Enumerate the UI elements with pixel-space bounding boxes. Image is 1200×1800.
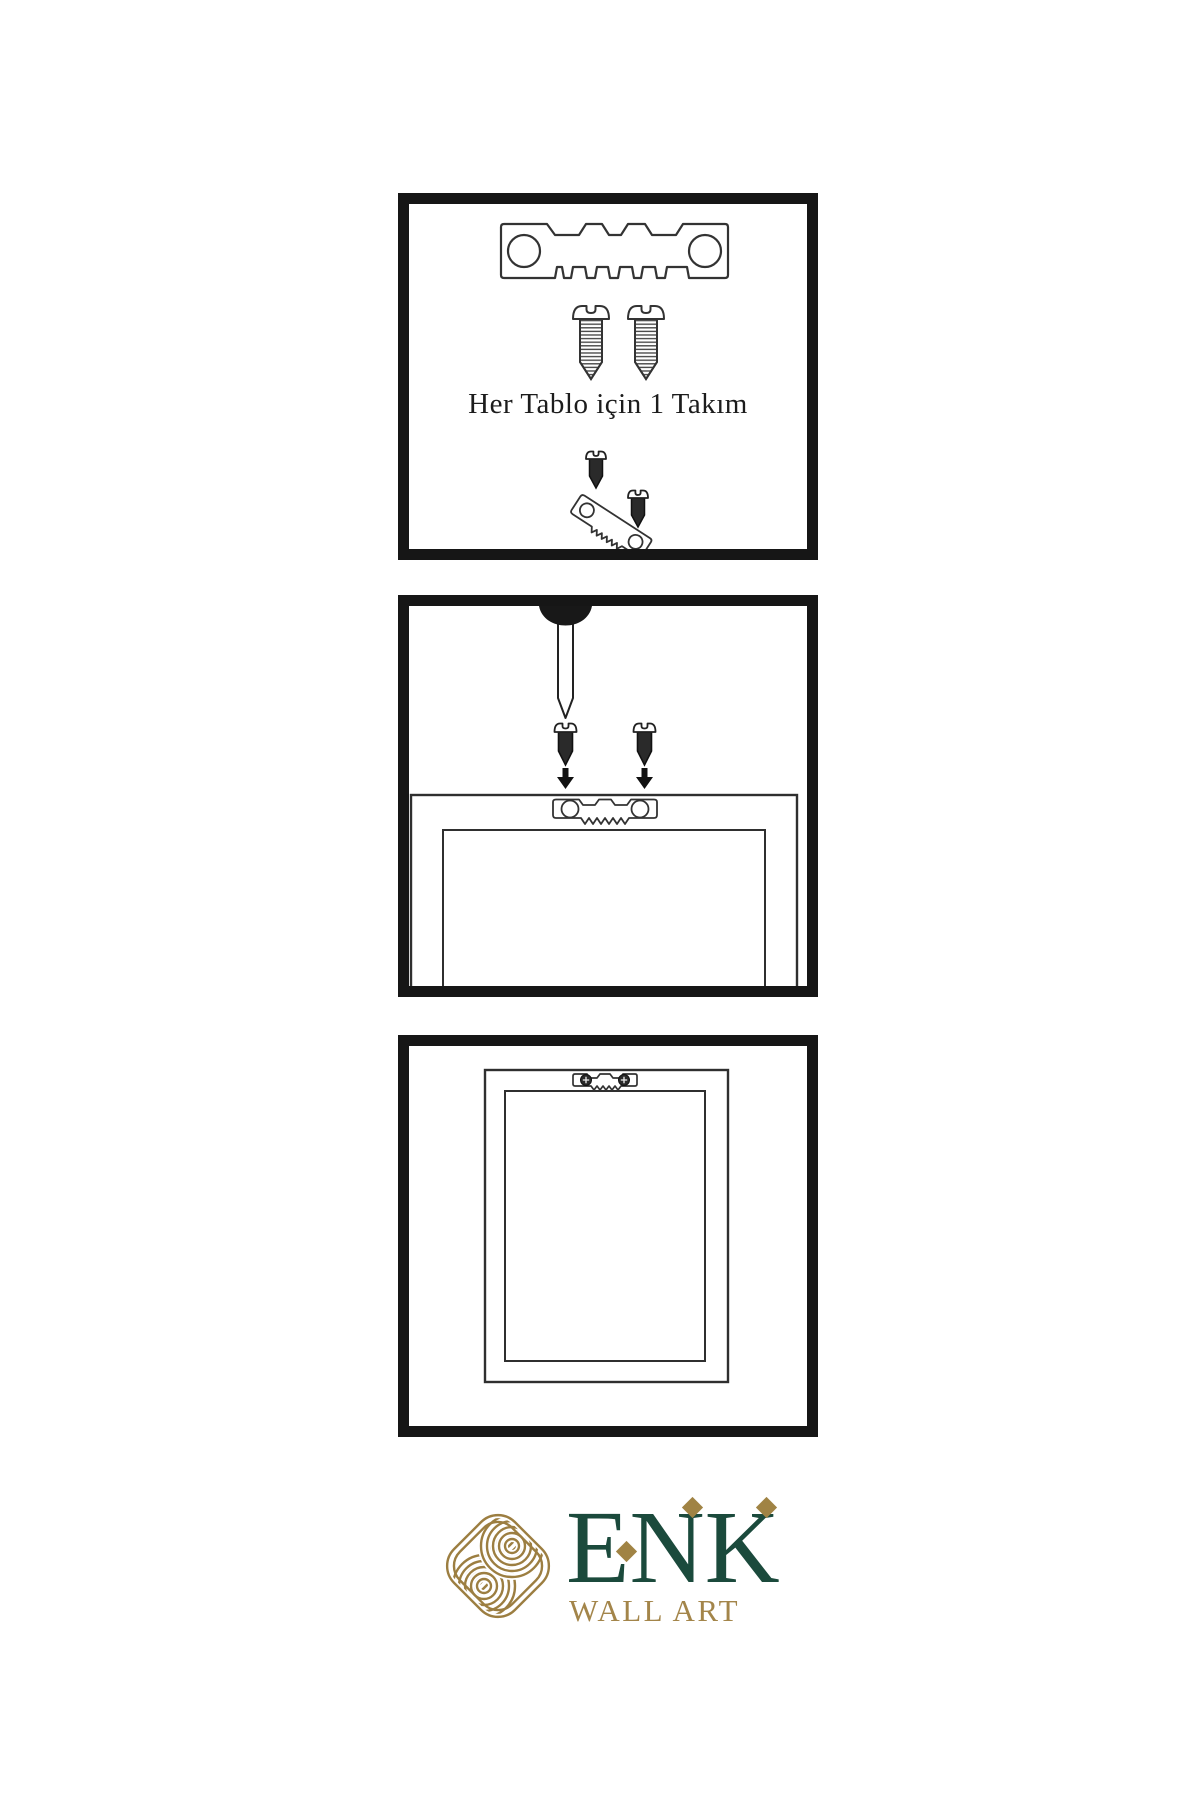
knot-icon <box>438 1502 558 1630</box>
down-arrow-icon <box>636 768 653 789</box>
hung-frame-diagram <box>409 1046 807 1426</box>
panel-mounting-step <box>398 595 818 997</box>
wall-nail-icon <box>539 606 592 718</box>
brand-text: ENK <box>566 1490 780 1605</box>
mini-hanger-set-icon <box>567 452 652 550</box>
dark-screw-icon <box>634 724 656 766</box>
frame-back-icon <box>411 795 797 986</box>
brand-logo: ENK WALL ART <box>438 1496 798 1666</box>
down-arrow-icon <box>557 768 574 789</box>
product-instruction-image: { "instructions": { "step1": { "caption"… <box>0 0 1200 1800</box>
panel-hardware-kit: Her Tablo için 1 Takım <box>398 193 818 560</box>
screw-icon <box>628 306 664 379</box>
frame-icon <box>485 1070 728 1382</box>
panel-hanging-step <box>398 1035 818 1437</box>
kit-caption: Her Tablo için 1 Takım <box>409 388 807 421</box>
dark-screw-icon <box>555 724 577 766</box>
brand-wordmark: ENK <box>566 1496 806 1606</box>
screw-icon <box>573 306 609 379</box>
screw-head-icon <box>619 1075 630 1086</box>
sawtooth-hanger-icon <box>501 224 728 278</box>
hardware-kit-diagram <box>409 204 807 549</box>
screw-head-icon <box>581 1075 592 1086</box>
mounting-diagram <box>409 606 807 986</box>
brand-tagline: WALL ART <box>569 1593 740 1629</box>
